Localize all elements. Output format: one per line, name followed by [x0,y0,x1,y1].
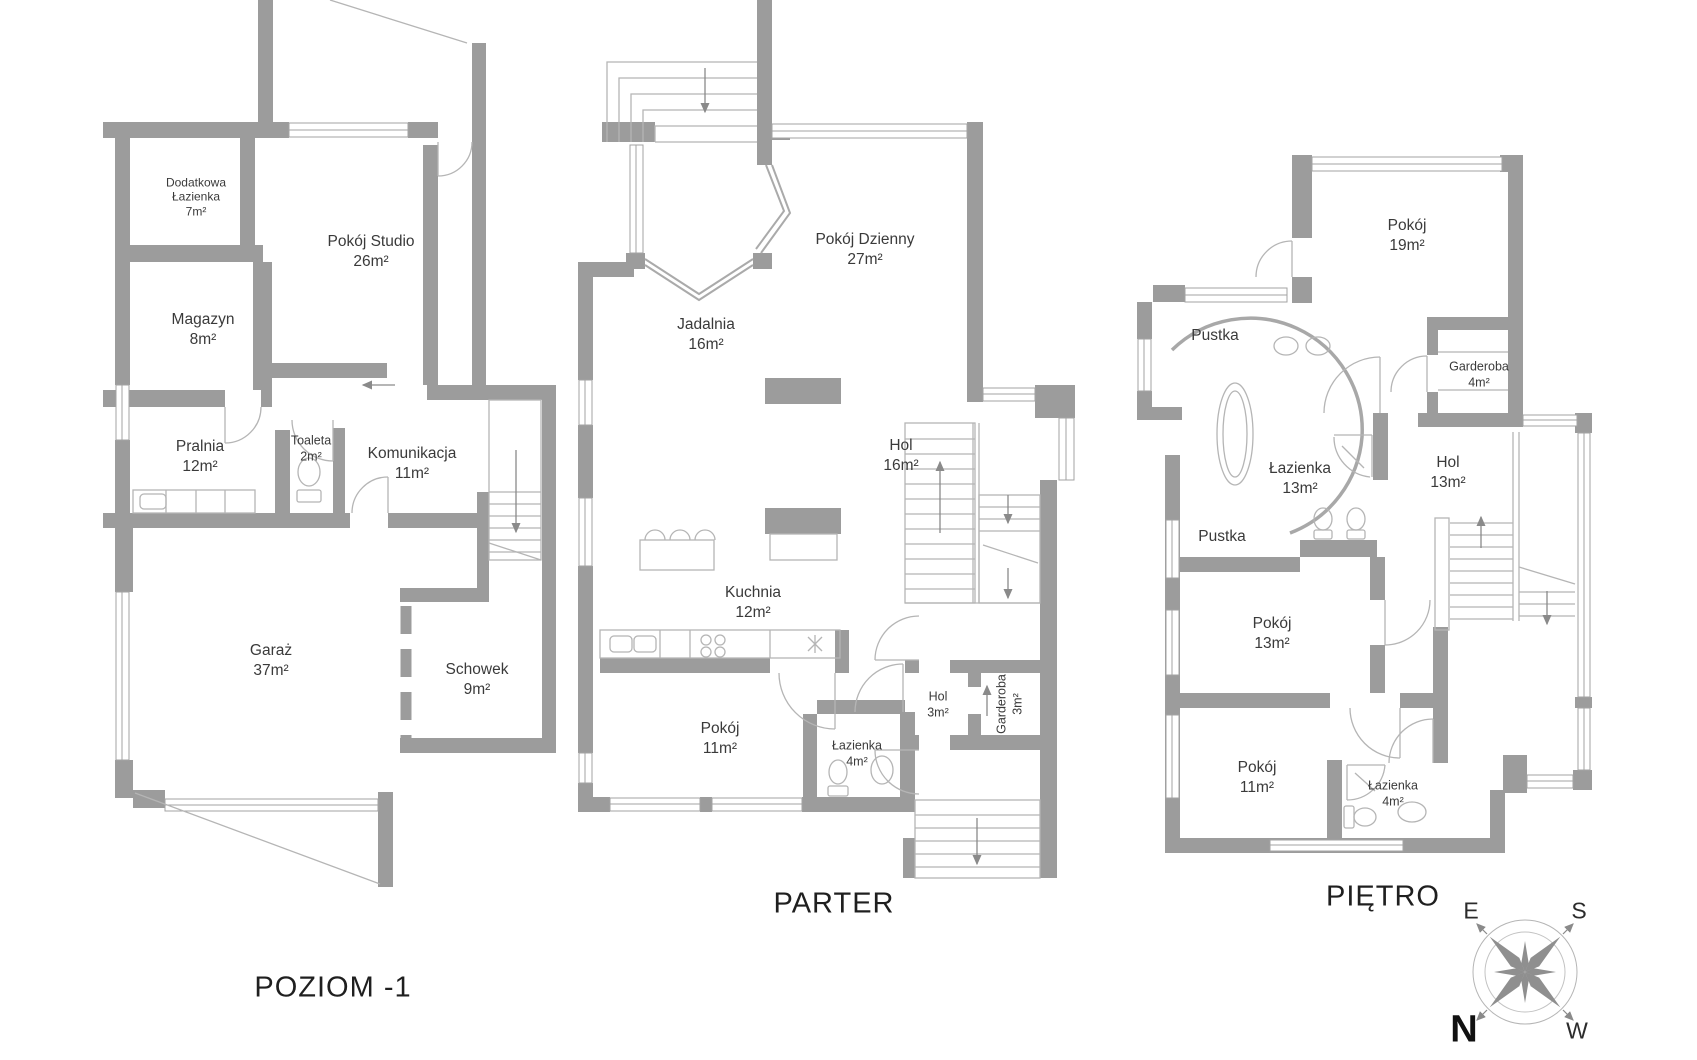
room-label-schowek: Schowek9m² [446,660,509,700]
round-bathroom-wall [1172,318,1362,533]
room-label-pokoj-13: Pokój13m² [1253,614,1292,654]
room-label-pokoj-19: Pokój19m² [1388,216,1427,256]
room-label-pralnia: Pralnia12m² [176,437,224,477]
room-label-magazyn: Magazyn8m² [172,310,235,350]
room-label-pokoj-studio: Pokój Studio26m² [327,232,414,272]
compass-west-label: W [1566,1018,1588,1045]
room-label-lazienka-4-parter: Łazienka4m² [832,738,882,769]
room-label-lazienka-13: Łazienka13m² [1269,459,1331,499]
floor-title-parter: PARTER [774,888,895,921]
room-label-pokoj-11-pietro: Pokój11m² [1238,758,1277,798]
room-label-lazienka-4-pietro: Łazienka4m² [1368,778,1418,809]
plan-parter [578,0,1075,878]
room-label-hol-13: Hol13m² [1430,453,1465,493]
room-label-toaleta: Toaleta2m² [291,433,331,464]
room-label-pokoj-dzienny: Pokój Dzienny27m² [815,230,914,270]
compass-north-label: N [1450,1009,1477,1052]
room-label-garderoba-4: Garderoba4m² [1449,359,1509,390]
walls-pietro [1137,155,1592,853]
plan-pietro [1137,155,1592,853]
room-label-hol-16: Hol16m² [883,436,918,476]
room-label-komunikacja: Komunikacja11m² [368,444,457,484]
floor-title-pietro: PIĘTRO [1326,881,1440,914]
room-label-kuchnia: Kuchnia12m² [725,583,781,623]
compass-south-label: S [1571,898,1586,925]
room-label-pustka-2: Pustka [1198,527,1245,547]
bay-glazing [645,165,790,300]
floorplan-page: Dodatkowa Łazienka7m² Pokój Studio26m² M… [0,0,1697,1060]
room-label-dodatkowa-lazienka: Dodatkowa Łazienka7m² [148,175,244,218]
room-label-garderoba-3: Garderoba3m² [994,674,1025,734]
windows-poziom-1 [116,123,408,811]
room-label-jadalnia: Jadalnia16m² [677,315,735,355]
room-label-pustka-1: Pustka [1191,326,1238,346]
floor-title-poziom-1: POZIOM -1 [254,972,411,1005]
compass-east-label: E [1463,898,1478,925]
compass-rose [1473,920,1577,1024]
room-label-pokoj-11-parter: Pokój11m² [701,719,740,759]
room-label-hol-3: Hol3m² [927,689,949,720]
room-label-garaz: Garaż37m² [250,641,292,681]
